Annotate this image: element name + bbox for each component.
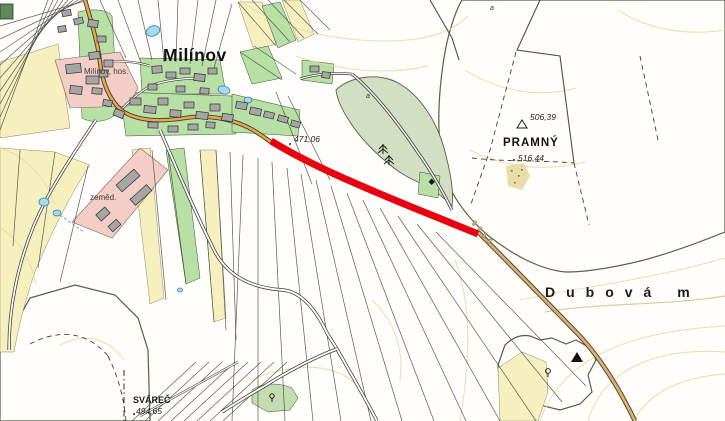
building xyxy=(194,73,206,81)
parcel-line xyxy=(380,208,500,421)
field-west xyxy=(0,148,90,352)
region-label: Dubová m xyxy=(545,284,701,300)
building xyxy=(62,9,72,16)
monument-parcel xyxy=(418,172,440,198)
building xyxy=(144,105,157,113)
building xyxy=(196,111,209,119)
forest-elevation-label: 516,44 xyxy=(518,153,544,163)
farm-note-label: Milínov, hos. xyxy=(84,67,128,76)
hill-label: PRAMNÝ xyxy=(503,136,559,149)
building xyxy=(200,88,209,95)
building xyxy=(188,124,198,130)
building xyxy=(103,99,113,106)
building xyxy=(92,88,102,95)
pond-icon xyxy=(244,97,252,103)
forest-triangle-icon xyxy=(571,352,583,362)
building xyxy=(180,68,190,74)
parcel-line xyxy=(184,362,248,421)
field-nw xyxy=(0,44,70,138)
building xyxy=(210,104,220,111)
forest-square-nw xyxy=(0,4,13,19)
pond-icon xyxy=(178,288,183,292)
settlement-elevation-label: 494,65 xyxy=(136,406,162,416)
building xyxy=(310,66,319,72)
building xyxy=(148,84,157,90)
strip-cream-4 xyxy=(200,150,226,322)
building xyxy=(152,66,162,74)
building xyxy=(206,122,215,129)
building xyxy=(148,122,158,128)
road-elevation-label: 471,06 xyxy=(294,134,320,144)
parcel-line xyxy=(301,174,341,421)
building xyxy=(130,98,141,105)
parcel-line xyxy=(398,216,536,421)
parcel-line xyxy=(158,362,222,421)
parcel-line xyxy=(197,362,261,421)
building xyxy=(104,60,113,67)
building xyxy=(168,126,178,132)
building xyxy=(66,63,82,74)
field-se xyxy=(498,352,548,421)
building xyxy=(58,25,67,32)
building xyxy=(176,86,185,92)
parcel-line xyxy=(230,152,236,340)
building xyxy=(86,76,99,84)
spot-height-icon xyxy=(289,143,291,145)
parcel-line xyxy=(232,155,243,421)
building xyxy=(89,51,101,59)
parcel-line xyxy=(331,186,402,421)
pond-icon xyxy=(53,210,61,216)
strip-green-2 xyxy=(240,46,282,84)
topographic-map[interactable]: Milínov Milínov, hos. zeměd. PRAMNÝ 506,… xyxy=(0,0,725,421)
building xyxy=(170,110,181,118)
pond-icon xyxy=(39,198,49,206)
spot-height-icon xyxy=(513,159,515,161)
parcel-line xyxy=(287,168,313,421)
building xyxy=(208,68,217,74)
spot-height-icon xyxy=(133,413,135,415)
building xyxy=(235,101,247,110)
parcel-line xyxy=(171,362,235,421)
parcel-line xyxy=(118,0,140,60)
building xyxy=(88,19,99,27)
parcel-line xyxy=(417,224,562,402)
trig-elevation-label: 506,39 xyxy=(530,112,556,122)
parcel-line xyxy=(363,200,466,421)
building xyxy=(184,102,194,108)
farm-abbr-label: zeměd. xyxy=(90,193,116,202)
village-label: Milínov xyxy=(163,45,227,65)
parcel-line xyxy=(316,180,371,421)
pond-icon xyxy=(145,24,162,38)
building xyxy=(166,72,176,78)
scrub-abbr-label: a xyxy=(366,93,370,100)
trig-point-icon xyxy=(517,120,527,128)
scrub-abbr-label: a xyxy=(490,5,494,12)
settlement-label: SVÁREČ xyxy=(133,394,171,405)
building xyxy=(70,85,83,94)
building xyxy=(158,98,168,105)
building xyxy=(222,113,234,121)
forest-area-pramny xyxy=(439,0,725,272)
building xyxy=(322,72,331,79)
building xyxy=(97,36,106,42)
